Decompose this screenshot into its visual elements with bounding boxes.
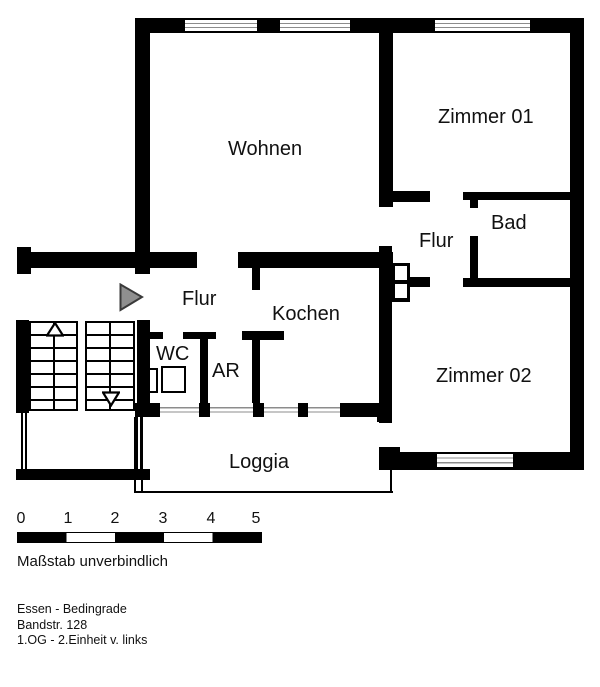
room-label-wohnen: Wohnen <box>228 138 302 160</box>
room-label-wc: WC <box>156 343 189 365</box>
loggia-line <box>390 468 392 493</box>
room-label-kochen: Kochen <box>272 303 340 325</box>
room-label-zimmer02: Zimmer 02 <box>436 365 532 387</box>
address-block: Essen - Bedingrade Bandstr. 128 1.OG - 2… <box>17 602 147 649</box>
window-mullion <box>298 403 308 417</box>
wc-fixture <box>161 366 186 393</box>
wall-segment <box>137 320 150 413</box>
address-line-2: Bandstr. 128 <box>17 618 147 634</box>
scale-label: 1 <box>60 510 76 528</box>
railing-line <box>136 413 138 469</box>
entrance-arrow-icon <box>119 283 144 312</box>
scale-label: 2 <box>107 510 123 528</box>
room-label-bad: Bad <box>491 212 527 234</box>
wall-segment <box>393 191 430 202</box>
scale-label: 3 <box>155 510 171 528</box>
wall-segment <box>408 277 430 287</box>
stairs-down-icon <box>102 391 120 407</box>
wall-segment <box>148 332 163 339</box>
loggia-line <box>141 417 143 493</box>
room-label-flur-left: Flur <box>182 288 216 310</box>
railing-line <box>25 413 27 469</box>
stairs-up-icon <box>46 322 64 337</box>
wall-segment <box>16 320 29 413</box>
room-label-ar: AR <box>212 360 240 382</box>
wall-segment <box>17 252 197 268</box>
scale-label: 0 <box>13 510 29 528</box>
address-line-1: Essen - Bedingrade <box>17 602 147 618</box>
room-label-zimmer01: Zimmer 01 <box>438 106 534 128</box>
wall-segment <box>252 331 260 403</box>
scale-bar <box>17 532 262 543</box>
window <box>160 404 340 416</box>
window <box>280 20 350 31</box>
window <box>185 20 257 31</box>
wall-segment <box>463 192 570 200</box>
room-label-flur-right: Flur <box>419 230 453 252</box>
wall-segment <box>470 200 478 208</box>
address-line-3: 1.OG - 2.Einheit v. links <box>17 633 147 649</box>
scale-label: 4 <box>203 510 219 528</box>
floor-plan: Wohnen Zimmer 01 Bad Flur Flur Kochen WC… <box>0 0 600 687</box>
window <box>437 454 513 467</box>
wall-segment <box>463 278 570 287</box>
wall-segment <box>200 332 208 403</box>
wall-segment <box>379 18 393 207</box>
wall-segment <box>570 18 584 470</box>
wall-segment <box>252 268 260 290</box>
room-label-loggia: Loggia <box>229 451 289 473</box>
scale-caption: Maßstab unverbindlich <box>17 553 168 570</box>
loggia-line <box>134 417 136 493</box>
wall-segment <box>238 252 393 268</box>
window-mullion <box>199 403 210 417</box>
window <box>435 20 530 31</box>
wall-segment <box>377 403 392 422</box>
wall-segment <box>16 469 150 480</box>
window-mullion <box>253 403 264 417</box>
scale-label: 5 <box>248 510 264 528</box>
loggia-line <box>134 491 393 493</box>
wall-segment <box>135 18 150 274</box>
wall-segment <box>242 331 284 340</box>
railing-line <box>21 413 23 469</box>
wall-segment <box>379 246 392 423</box>
